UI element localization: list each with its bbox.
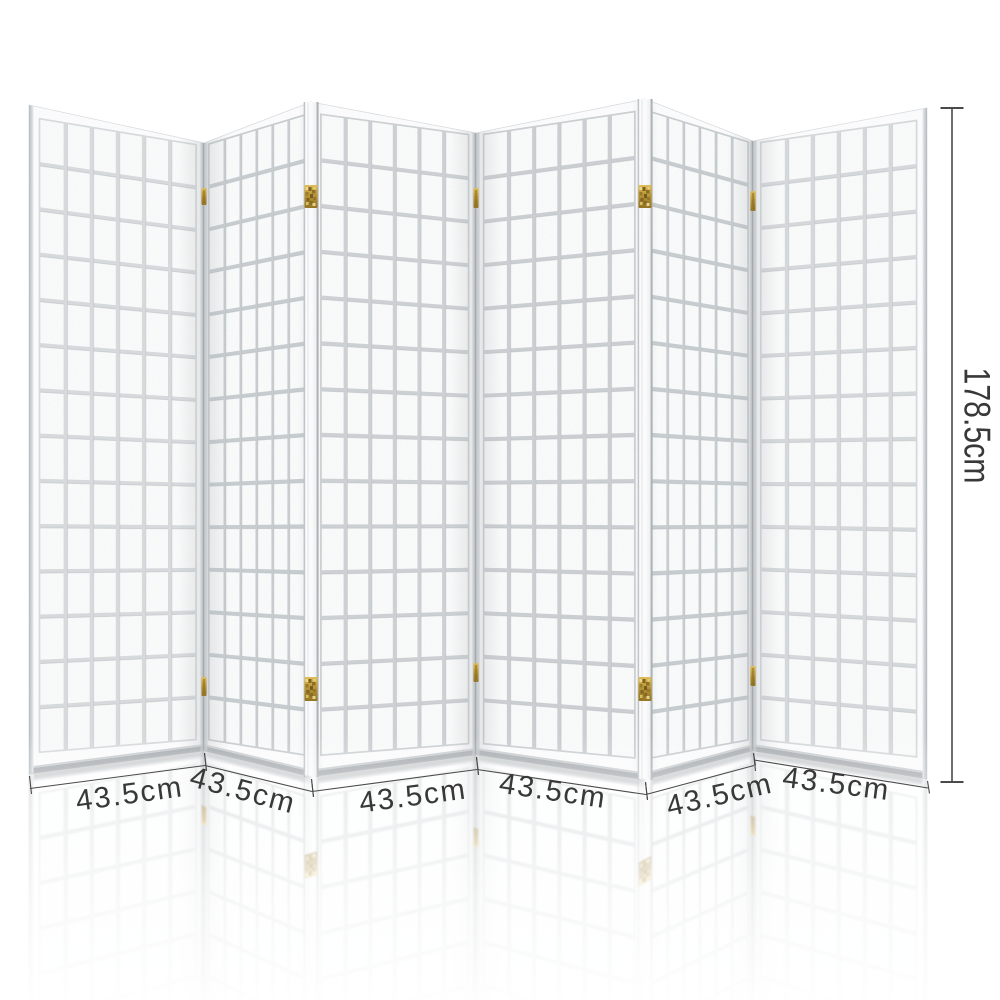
- svg-text:178.5cm: 178.5cm: [957, 368, 998, 484]
